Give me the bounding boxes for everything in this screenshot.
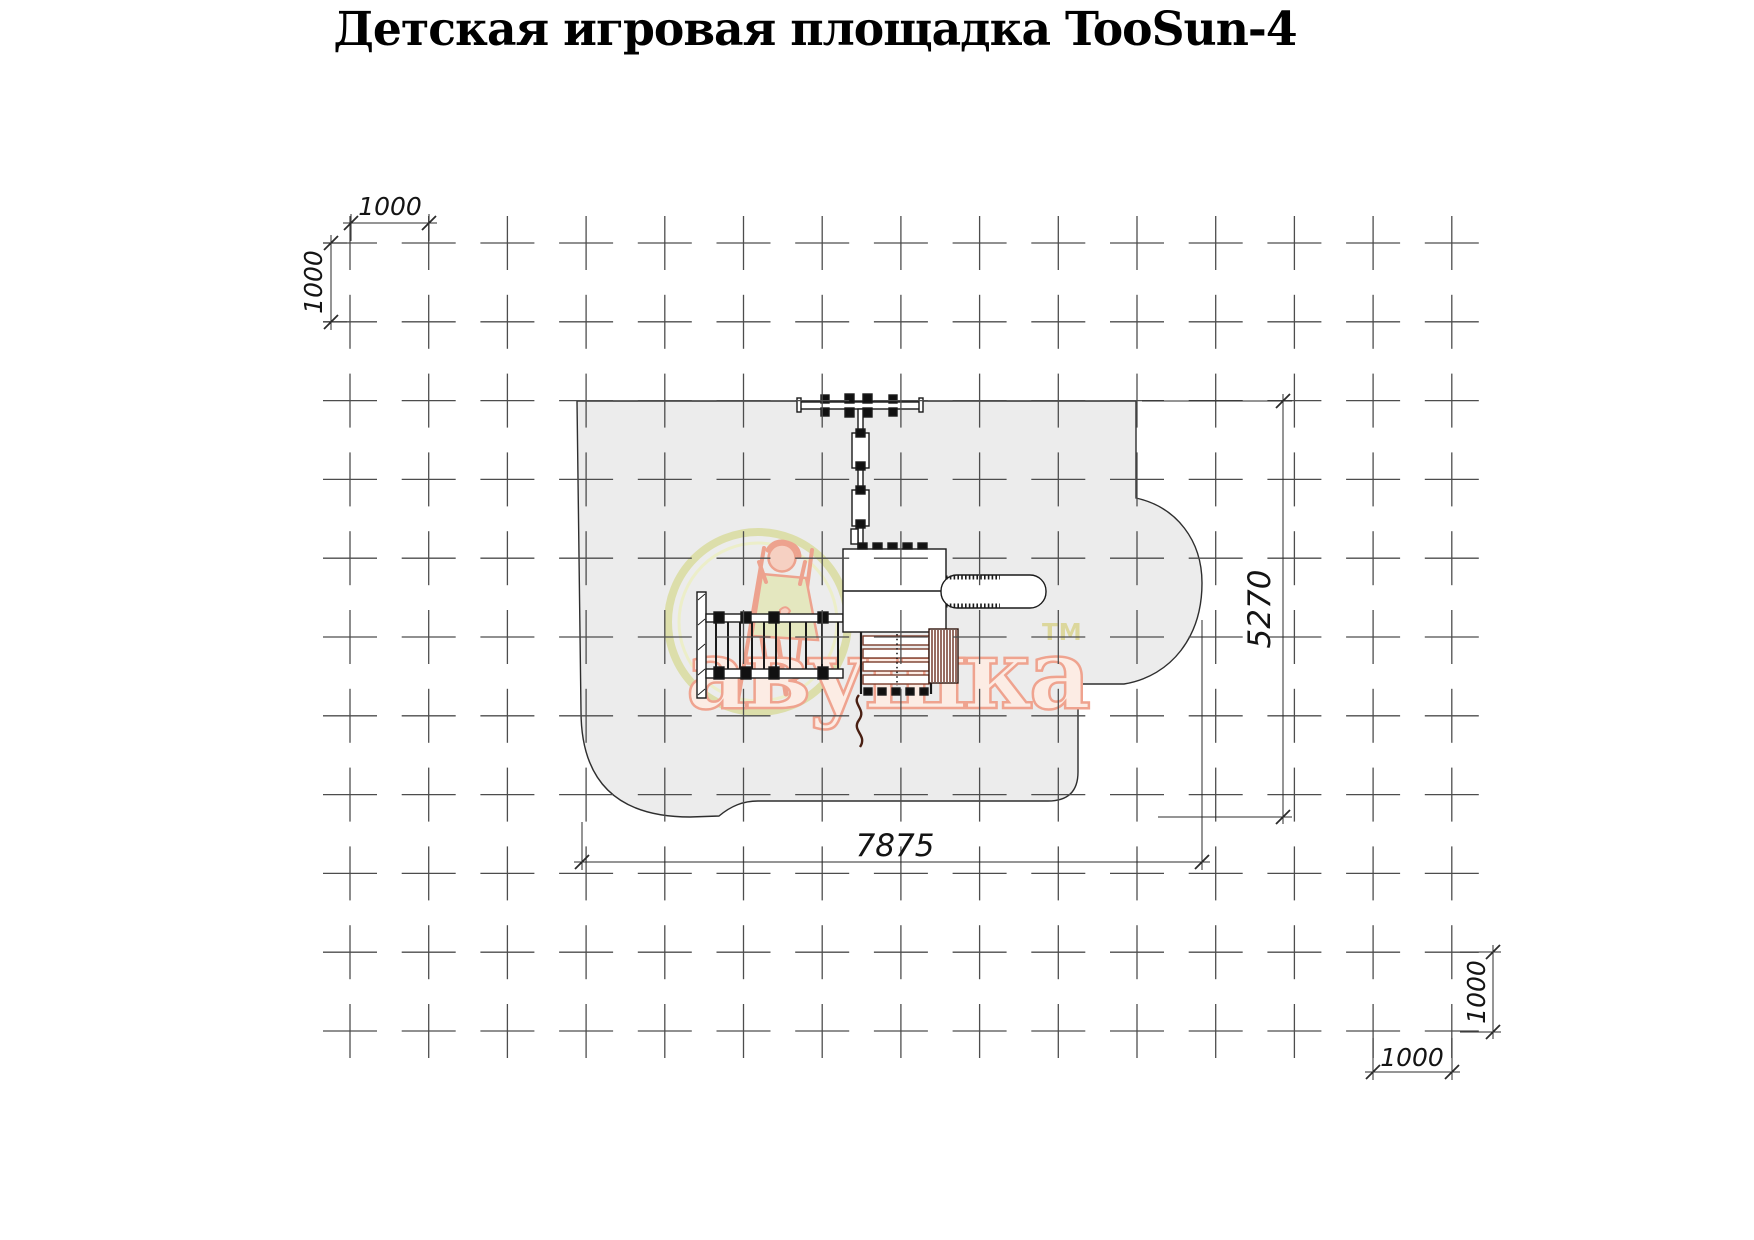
tower-platform [843,543,946,632]
slide-tube [941,575,1046,608]
plan-drawing: авушка ТМ [0,0,1754,1240]
dim-label-width-7875: 7875 [856,828,935,864]
coordinate-grid [323,216,1479,1058]
trademark-label: ТМ [1042,620,1083,646]
dim-label-bottom-right-vertical-1000: 1000 [1462,960,1491,1024]
page-title: Детская игровая площадка TooSun-4 [24,2,1605,57]
dim-label-top-1000: 1000 [358,192,422,221]
drawing-sheet: Детская игровая площадка TooSun-4 авушка [0,0,1754,1240]
dim-label-height-5270: 5270 [1242,570,1278,649]
dim-label-bottom-right-horizontal-1000: 1000 [1380,1043,1444,1072]
dim-label-left-1000: 1000 [299,250,328,314]
